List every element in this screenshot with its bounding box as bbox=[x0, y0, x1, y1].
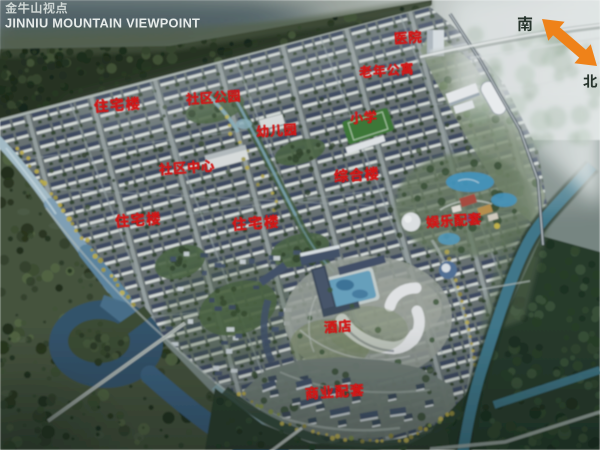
svg-text:JINNIU MOUNTAIN VIEWPOINT: JINNIU MOUNTAIN VIEWPOINT bbox=[5, 16, 200, 31]
